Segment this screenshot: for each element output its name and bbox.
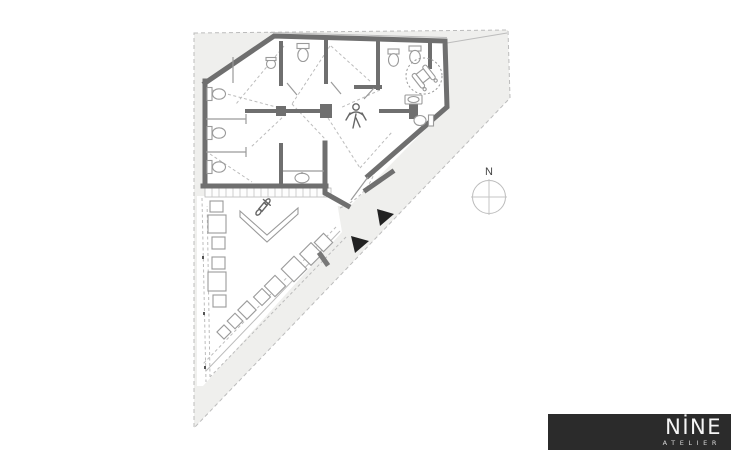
table [212, 237, 225, 249]
step-strip [205, 188, 331, 197]
toilet-icon [388, 49, 399, 66]
table [208, 272, 226, 291]
floor-plan-canvas: N [0, 0, 736, 460]
table [212, 257, 225, 269]
table [210, 201, 223, 212]
toilet-icon [297, 44, 309, 62]
boundary-tick-3 [204, 366, 206, 369]
compass-north-label: N [485, 166, 493, 178]
toilet-icon [207, 127, 226, 140]
logo-subtitle: ATELIER [663, 439, 722, 447]
toilet-icon [207, 161, 226, 174]
sink-icon [405, 95, 422, 104]
logo-title: NİNE [665, 417, 722, 438]
boundary-tick-2 [203, 312, 205, 315]
north-compass-icon: N [471, 166, 507, 215]
boundary-tick-1 [202, 256, 204, 259]
table [213, 295, 226, 307]
toilet-icon [414, 115, 434, 126]
toilet-icon [207, 88, 226, 101]
nine-atelier-logo: NİNE ATELIER [548, 414, 731, 450]
sink-icon [266, 58, 276, 69]
site-plan-sheet: N NİNE ATELIER [0, 0, 736, 460]
table [208, 215, 226, 233]
